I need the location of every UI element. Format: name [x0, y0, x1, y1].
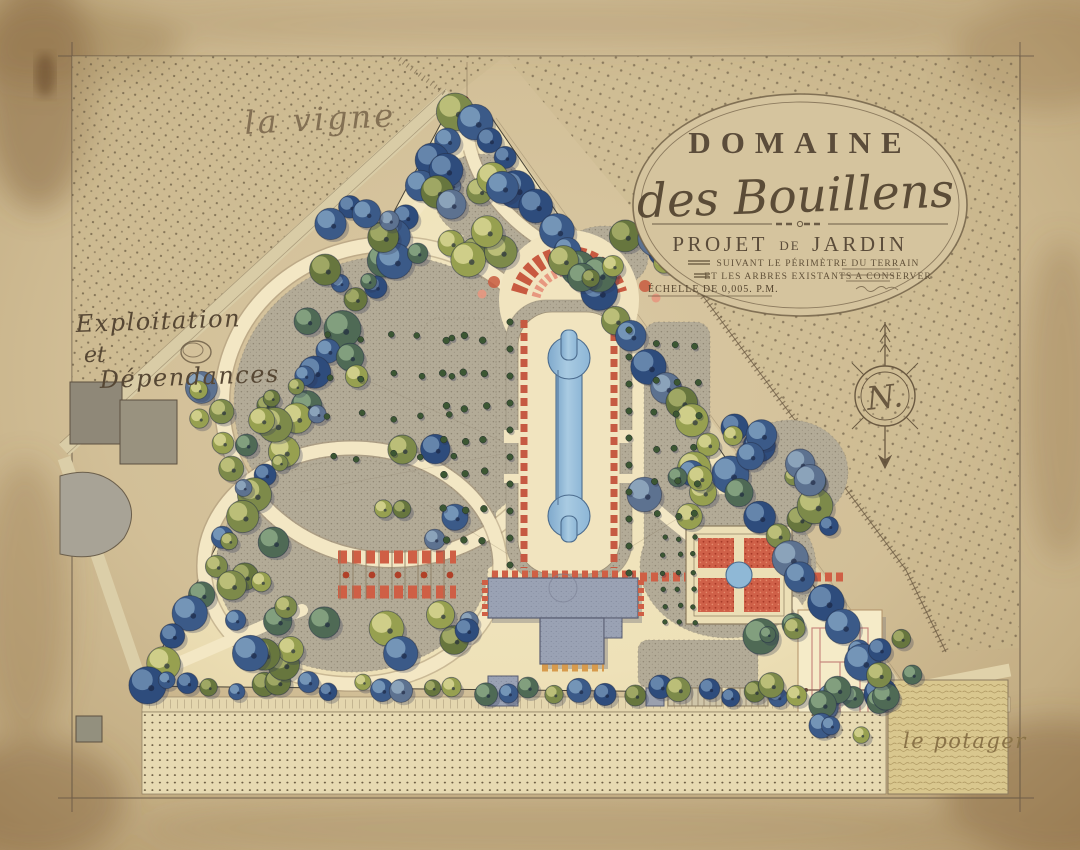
svg-text:SUIVANT LE PÉRIMÈTRE DU TERRAI: SUIVANT LE PÉRIMÈTRE DU TERRAIN	[717, 257, 920, 269]
svg-text:ÉCHELLE DE 0,005. P.M.: ÉCHELLE DE 0,005. P.M.	[648, 283, 779, 295]
plan-canvas: DOMAINE des Bouillens PROJET DE JARDIN S…	[0, 0, 1080, 850]
svg-text:PROJET: PROJET	[672, 232, 768, 256]
label-kitchen-garden: le potager	[903, 729, 1027, 753]
label-vineyard: la vigne	[243, 96, 397, 142]
cartouche-name: des Bouillens	[636, 163, 955, 229]
parterre-basin	[726, 562, 752, 588]
svg-text:JARDIN: JARDIN	[812, 232, 908, 256]
ink-blot	[35, 53, 55, 97]
cartouche: DOMAINE des Bouillens PROJET DE JARDIN S…	[633, 94, 967, 316]
svg-text:DE: DE	[779, 238, 800, 253]
svg-text:ET LES ARBRES EXISTANTS A CONS: ET LES ARBRES EXISTANTS A CONSERVER	[704, 272, 932, 282]
scale-note: ÉCHELLE DE 0,005. P.M.	[648, 283, 779, 296]
label-estate-1: Exploitation	[74, 304, 241, 338]
cartouche-domain-word: DOMAINE	[688, 125, 911, 160]
vine-rows-south	[142, 712, 886, 794]
garden-plan-artwork: DOMAINE des Bouillens PROJET DE JARDIN S…	[0, 0, 1080, 850]
label-estate-2: et	[84, 343, 106, 368]
north-letter: N.	[864, 376, 905, 418]
